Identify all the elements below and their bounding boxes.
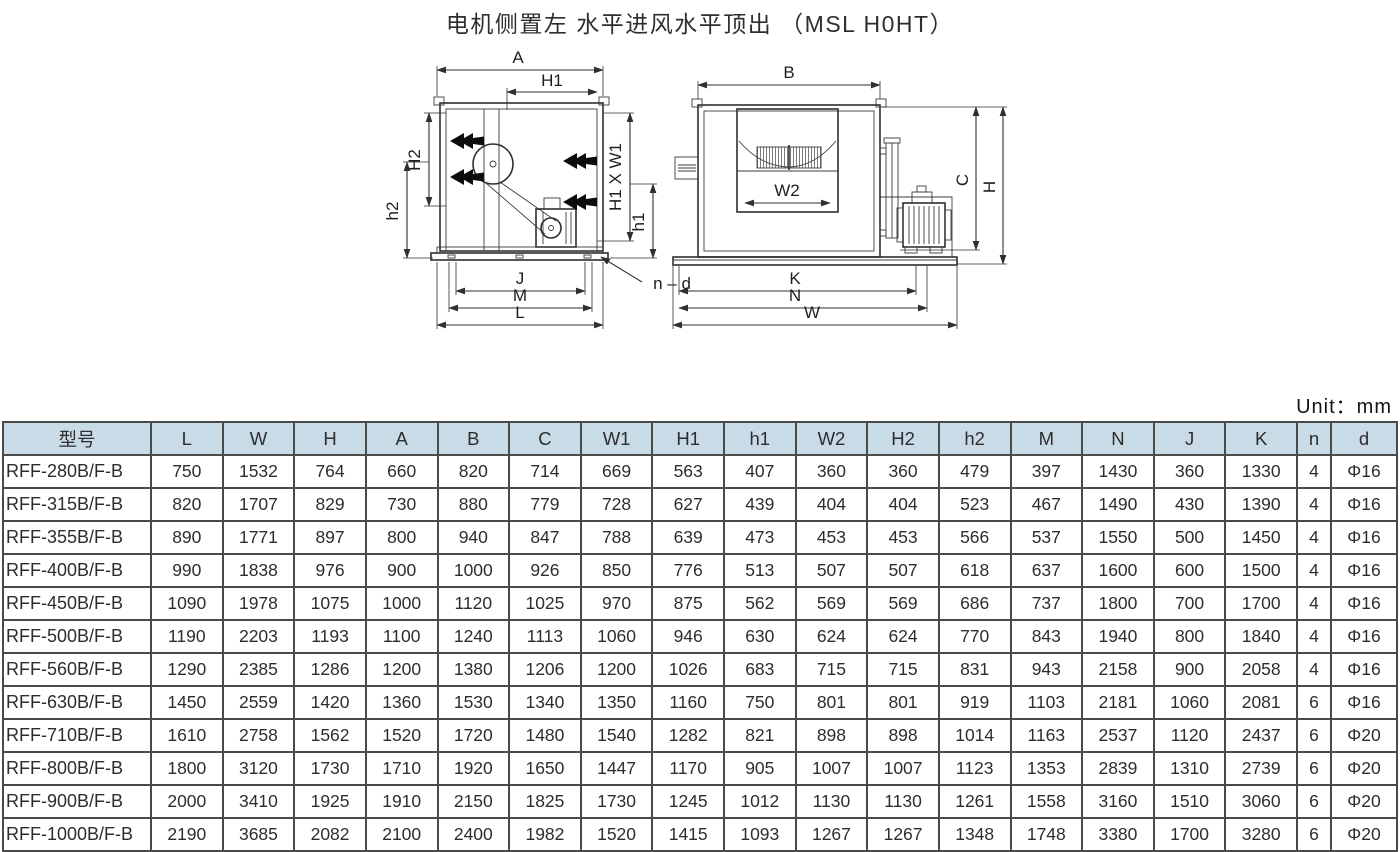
model-cell: RFF-500B/F-B (3, 620, 151, 653)
left-diagram: A H1 H2 h2 H1 X W1 h1 J (383, 48, 691, 329)
right-dimensions: B W2 C H K N W (673, 63, 1007, 329)
value-cell: 2400 (438, 818, 510, 851)
value-cell: 4 (1297, 488, 1331, 521)
model-cell: RFF-710B/F-B (3, 719, 151, 752)
value-cell: 639 (652, 521, 724, 554)
model-cell: RFF-280B/F-B (3, 455, 151, 488)
technical-drawings: A H1 H2 h2 H1 X W1 h1 J (0, 0, 1400, 400)
value-cell: 898 (867, 719, 939, 752)
value-cell: Φ16 (1331, 686, 1397, 719)
value-cell: 875 (652, 587, 724, 620)
value-cell: 700 (1154, 587, 1226, 620)
value-cell: 2150 (438, 785, 510, 818)
value-cell: 537 (1011, 521, 1083, 554)
value-cell: 970 (581, 587, 653, 620)
value-cell: 1060 (581, 620, 653, 653)
value-cell: 946 (652, 620, 724, 653)
value-cell: 2190 (151, 818, 223, 851)
value-cell: 1025 (509, 587, 581, 620)
value-cell: 1532 (223, 455, 295, 488)
value-cell: 1340 (509, 686, 581, 719)
value-cell: Φ20 (1331, 818, 1397, 851)
value-cell: 1075 (294, 587, 366, 620)
right-diagram: B W2 C H K N W (673, 63, 1007, 329)
table-row: RFF-500B/F-B1190220311931100124011131060… (3, 620, 1397, 653)
value-cell: 439 (724, 488, 796, 521)
value-cell: 715 (796, 653, 868, 686)
column-header: H (294, 422, 366, 455)
value-cell: 919 (939, 686, 1011, 719)
value-cell: 1060 (1154, 686, 1226, 719)
value-cell: 2537 (1082, 719, 1154, 752)
value-cell: 1838 (223, 554, 295, 587)
value-cell: 1267 (867, 818, 939, 851)
value-cell: 563 (652, 455, 724, 488)
value-cell: 1562 (294, 719, 366, 752)
value-cell: 850 (581, 554, 653, 587)
table-row: RFF-710B/F-B1610275815621520172014801540… (3, 719, 1397, 752)
value-cell: 660 (366, 455, 438, 488)
spec-table-body: RFF-280B/F-B7501532764660820714669563407… (3, 455, 1397, 851)
value-cell: 1348 (939, 818, 1011, 851)
value-cell: 2559 (223, 686, 295, 719)
column-header: H2 (867, 422, 939, 455)
value-cell: 1267 (796, 818, 868, 851)
value-cell: 800 (1154, 620, 1226, 653)
value-cell: 715 (867, 653, 939, 686)
value-cell: 1650 (509, 752, 581, 785)
value-cell: 2081 (1225, 686, 1297, 719)
column-header: M (1011, 422, 1083, 455)
value-cell: 1360 (366, 686, 438, 719)
value-cell: 3280 (1225, 818, 1297, 851)
table-row: RFF-560B/F-B1290238512861200138012061200… (3, 653, 1397, 686)
value-cell: 1353 (1011, 752, 1083, 785)
value-cell: 779 (509, 488, 581, 521)
dim-label-B: B (783, 63, 794, 82)
value-cell: 1500 (1225, 554, 1297, 587)
column-header: C (509, 422, 581, 455)
value-cell: 686 (939, 587, 1011, 620)
column-header: d (1331, 422, 1397, 455)
value-cell: 4 (1297, 521, 1331, 554)
dim-label-W2: W2 (774, 181, 800, 200)
value-cell: 1420 (294, 686, 366, 719)
value-cell: 1200 (366, 653, 438, 686)
value-cell: 1014 (939, 719, 1011, 752)
value-cell: 1100 (366, 620, 438, 653)
value-cell: 1510 (1154, 785, 1226, 818)
value-cell: 4 (1297, 653, 1331, 686)
value-cell: 624 (796, 620, 868, 653)
value-cell: 637 (1011, 554, 1083, 587)
dim-label-opening: H1 X W1 (606, 143, 625, 211)
value-cell: 569 (867, 587, 939, 620)
base-frame-side (431, 247, 608, 260)
dim-label-C: C (953, 174, 972, 186)
value-cell: 1910 (366, 785, 438, 818)
value-cell: 1720 (438, 719, 510, 752)
value-cell: 2158 (1082, 653, 1154, 686)
dim-label-nd: n – d (653, 274, 691, 293)
value-cell: 728 (581, 488, 653, 521)
unit-label: Unit：mm (1296, 390, 1392, 419)
value-cell: 1245 (652, 785, 724, 818)
table-row: RFF-450B/F-B1090197810751000112010259708… (3, 587, 1397, 620)
value-cell: 500 (1154, 521, 1226, 554)
value-cell: 624 (867, 620, 939, 653)
value-cell: 1982 (509, 818, 581, 851)
dim-label-L: L (515, 303, 524, 322)
value-cell: 1160 (652, 686, 724, 719)
value-cell: 2437 (1225, 719, 1297, 752)
value-cell: Φ16 (1331, 554, 1397, 587)
value-cell: 820 (438, 455, 510, 488)
value-cell: 1771 (223, 521, 295, 554)
value-cell: 4 (1297, 620, 1331, 653)
model-cell: RFF-400B/F-B (3, 554, 151, 587)
value-cell: 600 (1154, 554, 1226, 587)
value-cell: 770 (939, 620, 1011, 653)
model-cell: RFF-315B/F-B (3, 488, 151, 521)
value-cell: 473 (724, 521, 796, 554)
value-cell: 1163 (1011, 719, 1083, 752)
value-cell: 1748 (1011, 818, 1083, 851)
value-cell: 360 (796, 455, 868, 488)
value-cell: 630 (724, 620, 796, 653)
model-cell: RFF-560B/F-B (3, 653, 151, 686)
value-cell: 750 (151, 455, 223, 488)
dim-label-N: N (789, 286, 801, 305)
value-cell: Φ16 (1331, 488, 1397, 521)
value-cell: 1012 (724, 785, 796, 818)
column-header: W2 (796, 422, 868, 455)
value-cell: 1730 (581, 785, 653, 818)
column-header: A (366, 422, 438, 455)
value-cell: 880 (438, 488, 510, 521)
value-cell: 1093 (724, 818, 796, 851)
value-cell: 1090 (151, 587, 223, 620)
value-cell: 397 (1011, 455, 1083, 488)
value-cell: 943 (1011, 653, 1083, 686)
value-cell: 820 (151, 488, 223, 521)
value-cell: Φ16 (1331, 587, 1397, 620)
value-cell: 1700 (1154, 818, 1226, 851)
value-cell: 2385 (223, 653, 295, 686)
value-cell: 764 (294, 455, 366, 488)
dim-label-h1: h1 (629, 213, 648, 232)
value-cell: 1825 (509, 785, 581, 818)
value-cell: 1558 (1011, 785, 1083, 818)
value-cell: 507 (867, 554, 939, 587)
value-cell: 2739 (1225, 752, 1297, 785)
value-cell: 1286 (294, 653, 366, 686)
value-cell: 926 (509, 554, 581, 587)
value-cell: 1170 (652, 752, 724, 785)
value-cell: 821 (724, 719, 796, 752)
value-cell: Φ16 (1331, 620, 1397, 653)
value-cell: 683 (724, 653, 796, 686)
value-cell: 1707 (223, 488, 295, 521)
table-row: RFF-900B/F-B2000341019251910215018251730… (3, 785, 1397, 818)
value-cell: 1840 (1225, 620, 1297, 653)
value-cell: 1113 (509, 620, 581, 653)
table-row: RFF-280B/F-B7501532764660820714669563407… (3, 455, 1397, 488)
value-cell: 990 (151, 554, 223, 587)
value-cell: 831 (939, 653, 1011, 686)
value-cell: 1206 (509, 653, 581, 686)
value-cell: 1940 (1082, 620, 1154, 653)
value-cell: 1800 (151, 752, 223, 785)
dim-label-H1-top: H1 (541, 71, 563, 90)
table-row: RFF-315B/F-B8201707829730880779728627439… (3, 488, 1397, 521)
value-cell: 453 (867, 521, 939, 554)
value-cell: 479 (939, 455, 1011, 488)
value-cell: 1520 (366, 719, 438, 752)
value-cell: 801 (867, 686, 939, 719)
value-cell: 900 (1154, 653, 1226, 686)
column-header: N (1082, 422, 1154, 455)
value-cell: 1430 (1082, 455, 1154, 488)
value-cell: 1261 (939, 785, 1011, 818)
value-cell: 1450 (1225, 521, 1297, 554)
value-cell: 1000 (366, 587, 438, 620)
value-cell: 507 (796, 554, 868, 587)
value-cell: 669 (581, 455, 653, 488)
value-cell: 1007 (796, 752, 868, 785)
value-cell: 430 (1154, 488, 1226, 521)
column-header: n (1297, 422, 1331, 455)
value-cell: 1540 (581, 719, 653, 752)
table-row: RFF-630B/F-B1450255914201360153013401350… (3, 686, 1397, 719)
value-cell: 843 (1011, 620, 1083, 653)
value-cell: 800 (366, 521, 438, 554)
value-cell: 6 (1297, 686, 1331, 719)
value-cell: 2058 (1225, 653, 1297, 686)
value-cell: Φ16 (1331, 455, 1397, 488)
value-cell: 6 (1297, 818, 1331, 851)
value-cell: 1120 (1154, 719, 1226, 752)
value-cell: 6 (1297, 785, 1331, 818)
value-cell: 566 (939, 521, 1011, 554)
value-cell: 1490 (1082, 488, 1154, 521)
value-cell: Φ16 (1331, 521, 1397, 554)
value-cell: 1240 (438, 620, 510, 653)
value-cell: 1000 (438, 554, 510, 587)
value-cell: 801 (796, 686, 868, 719)
value-cell: 1290 (151, 653, 223, 686)
value-cell: 905 (724, 752, 796, 785)
value-cell: 3120 (223, 752, 295, 785)
model-cell: RFF-800B/F-B (3, 752, 151, 785)
value-cell: 1200 (581, 653, 653, 686)
value-cell: 847 (509, 521, 581, 554)
value-cell: 976 (294, 554, 366, 587)
dim-label-H2: H2 (405, 149, 424, 171)
value-cell: 1123 (939, 752, 1011, 785)
belt-drive (473, 144, 576, 247)
value-cell: 6 (1297, 752, 1331, 785)
value-cell: 1925 (294, 785, 366, 818)
value-cell: 1130 (867, 785, 939, 818)
value-cell: 788 (581, 521, 653, 554)
value-cell: 4 (1297, 587, 1331, 620)
value-cell: 1330 (1225, 455, 1297, 488)
left-dimensions: A H1 H2 h2 H1 X W1 h1 J (383, 48, 691, 329)
value-cell: 1007 (867, 752, 939, 785)
value-cell: 1282 (652, 719, 724, 752)
column-header: B (438, 422, 510, 455)
value-cell: 360 (867, 455, 939, 488)
fan-casing-front (675, 99, 886, 257)
value-cell: 1193 (294, 620, 366, 653)
value-cell: 1026 (652, 653, 724, 686)
column-header: 型号 (3, 422, 151, 455)
value-cell: 360 (1154, 455, 1226, 488)
value-cell: 407 (724, 455, 796, 488)
column-header: K (1225, 422, 1297, 455)
value-cell: 900 (366, 554, 438, 587)
value-cell: 1730 (294, 752, 366, 785)
value-cell: 1610 (151, 719, 223, 752)
value-cell: 1600 (1082, 554, 1154, 587)
value-cell: 1480 (509, 719, 581, 752)
value-cell: 2000 (151, 785, 223, 818)
model-cell: RFF-450B/F-B (3, 587, 151, 620)
value-cell: 453 (796, 521, 868, 554)
table-row: RFF-800B/F-B1800312017301710192016501447… (3, 752, 1397, 785)
value-cell: 890 (151, 521, 223, 554)
dim-label-W: W (804, 303, 820, 322)
column-header: L (151, 422, 223, 455)
value-cell: 1550 (1082, 521, 1154, 554)
value-cell: 750 (724, 686, 796, 719)
model-cell: RFF-900B/F-B (3, 785, 151, 818)
value-cell: 1800 (1082, 587, 1154, 620)
model-cell: RFF-630B/F-B (3, 686, 151, 719)
value-cell: 1380 (438, 653, 510, 686)
value-cell: 4 (1297, 554, 1331, 587)
value-cell: 897 (294, 521, 366, 554)
value-cell: 2100 (366, 818, 438, 851)
value-cell: 467 (1011, 488, 1083, 521)
table-row: RFF-1000B/F-B219036852082210024001982152… (3, 818, 1397, 851)
value-cell: 2082 (294, 818, 366, 851)
value-cell: 940 (438, 521, 510, 554)
column-header: W (223, 422, 295, 455)
value-cell: 4 (1297, 455, 1331, 488)
value-cell: 1450 (151, 686, 223, 719)
value-cell: 2203 (223, 620, 295, 653)
value-cell: 627 (652, 488, 724, 521)
value-cell: 1700 (1225, 587, 1297, 620)
table-header-row: 型号LWHABCW1H1h1W2H2h2MNJKnd (3, 422, 1397, 455)
value-cell: 1978 (223, 587, 295, 620)
motor (880, 186, 952, 257)
value-cell: 776 (652, 554, 724, 587)
value-cell: 1120 (438, 587, 510, 620)
value-cell: 523 (939, 488, 1011, 521)
value-cell: 737 (1011, 587, 1083, 620)
value-cell: 404 (796, 488, 868, 521)
value-cell: 513 (724, 554, 796, 587)
base-frame-front (673, 257, 957, 265)
column-header: W1 (581, 422, 653, 455)
value-cell: 730 (366, 488, 438, 521)
value-cell: Φ20 (1331, 719, 1397, 752)
value-cell: 1520 (581, 818, 653, 851)
value-cell: 1190 (151, 620, 223, 653)
value-cell: Φ20 (1331, 752, 1397, 785)
value-cell: 618 (939, 554, 1011, 587)
column-header: J (1154, 422, 1226, 455)
value-cell: 1130 (796, 785, 868, 818)
value-cell: 6 (1297, 719, 1331, 752)
value-cell: 3060 (1225, 785, 1297, 818)
value-cell: 714 (509, 455, 581, 488)
value-cell: 2758 (223, 719, 295, 752)
value-cell: 1390 (1225, 488, 1297, 521)
value-cell: 1447 (581, 752, 653, 785)
value-cell: 898 (796, 719, 868, 752)
value-cell: 3160 (1082, 785, 1154, 818)
column-header: H1 (652, 422, 724, 455)
value-cell: 1310 (1154, 752, 1226, 785)
value-cell: 1530 (438, 686, 510, 719)
value-cell: Φ20 (1331, 785, 1397, 818)
value-cell: 3380 (1082, 818, 1154, 851)
value-cell: 1103 (1011, 686, 1083, 719)
model-cell: RFF-355B/F-B (3, 521, 151, 554)
value-cell: 3410 (223, 785, 295, 818)
value-cell: 2181 (1082, 686, 1154, 719)
dim-label-h2: h2 (383, 202, 402, 221)
dim-label-A: A (512, 48, 524, 67)
value-cell: 2839 (1082, 752, 1154, 785)
value-cell: 1350 (581, 686, 653, 719)
value-cell: 569 (796, 587, 868, 620)
dim-label-H: H (980, 181, 999, 193)
value-cell: Φ16 (1331, 653, 1397, 686)
spec-table: 型号LWHABCW1H1h1W2H2h2MNJKnd RFF-280B/F-B7… (2, 421, 1398, 852)
value-cell: 1710 (366, 752, 438, 785)
value-cell: 1415 (652, 818, 724, 851)
column-header: h2 (939, 422, 1011, 455)
table-row: RFF-355B/F-B8901771897800940847788639473… (3, 521, 1397, 554)
value-cell: 1920 (438, 752, 510, 785)
value-cell: 829 (294, 488, 366, 521)
column-header: h1 (724, 422, 796, 455)
value-cell: 562 (724, 587, 796, 620)
value-cell: 3685 (223, 818, 295, 851)
model-cell: RFF-1000B/F-B (3, 818, 151, 851)
table-row: RFF-400B/F-B9901838976900100092685077651… (3, 554, 1397, 587)
value-cell: 404 (867, 488, 939, 521)
